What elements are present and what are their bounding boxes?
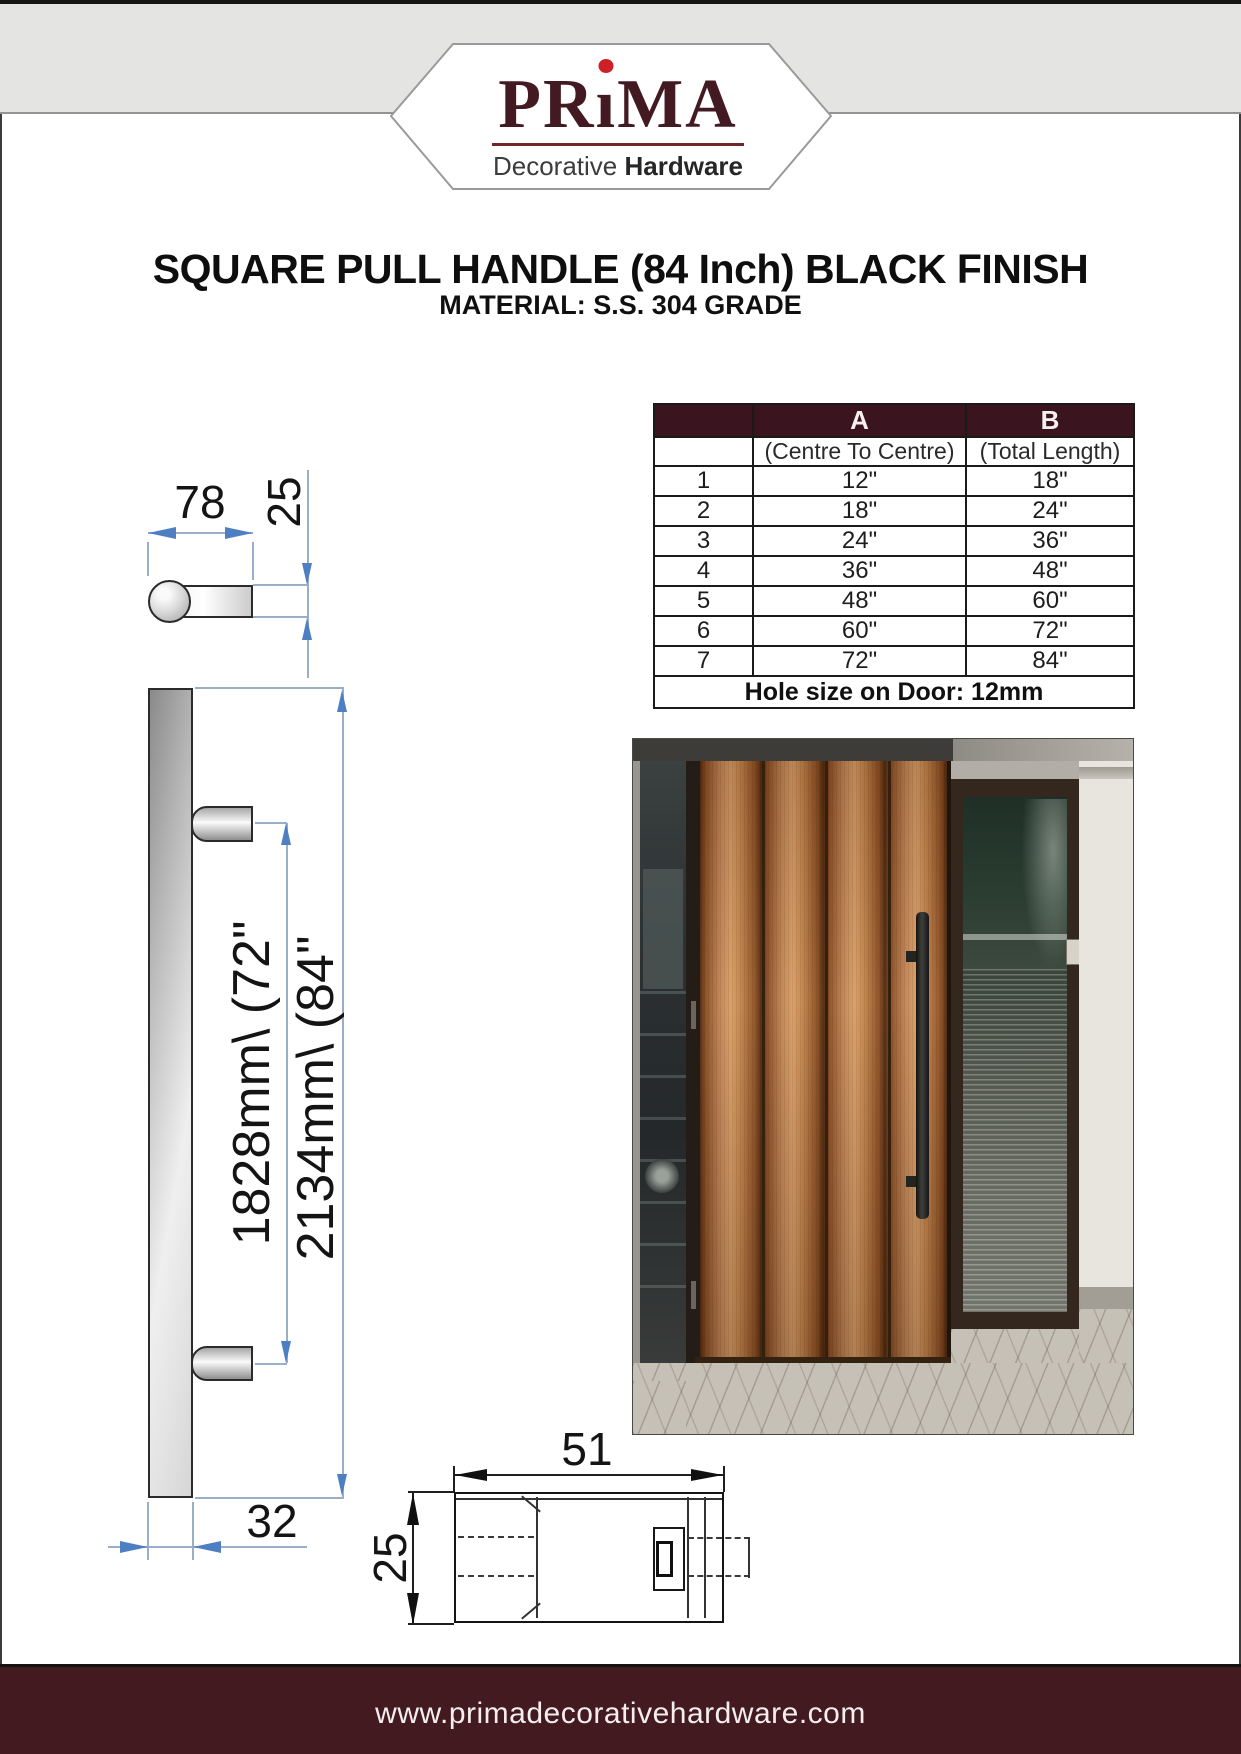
row-b: 60" — [966, 586, 1134, 616]
section-inner-line — [704, 1497, 706, 1618]
table-row: 2 18" 24" — [654, 496, 1134, 526]
dim-leader — [195, 687, 344, 689]
dim-leader — [253, 616, 308, 618]
row-no: 1 — [654, 466, 753, 496]
size-table: A B (Centre To Centre) (Total Length) 1 … — [653, 403, 1135, 709]
soffit — [633, 739, 953, 761]
row-no: 4 — [654, 556, 753, 586]
table-row: 7 72" 84" — [654, 646, 1134, 676]
brand-tagline: Decorative Hardware — [368, 151, 868, 182]
dim-label-height: 25 — [363, 1532, 417, 1583]
row-b: 36" — [966, 526, 1134, 556]
dim-arrow — [148, 527, 176, 539]
dim-arrow — [193, 1541, 221, 1553]
screw-thread-line — [688, 1575, 750, 1577]
subheader-col-b: (Total Length) — [966, 437, 1134, 466]
section-top-inner-line — [456, 1498, 722, 1500]
nut-edge-line — [536, 1497, 538, 1618]
header-col-a: A — [753, 404, 966, 437]
glass-streak — [963, 934, 1067, 940]
internal-thread-line — [458, 1575, 534, 1577]
table-subheader-row: (Centre To Centre) (Total Length) — [654, 437, 1134, 466]
dim-arrow — [337, 690, 347, 712]
dim-ext-line — [723, 1466, 725, 1492]
dim-arrow — [302, 618, 312, 640]
row-no: 2 — [654, 496, 753, 526]
dim-arrow — [337, 1474, 347, 1496]
brand-wordmark: PRıMA — [368, 70, 868, 140]
dim-label-width: 78 — [174, 475, 225, 529]
handle-top-view-post — [148, 580, 191, 623]
door-frame-left — [686, 761, 700, 1379]
table-note-row: Hole size on Door: 12mm — [654, 676, 1134, 708]
dim-leader — [255, 822, 287, 824]
table-row: 3 24" 36" — [654, 526, 1134, 556]
column-skirting — [1079, 1287, 1133, 1309]
handle-side-view-bar — [148, 688, 193, 1498]
internal-thread-line — [458, 1536, 534, 1538]
paver-floor — [633, 1381, 686, 1434]
ceiling — [953, 739, 1133, 761]
dim-label-total-length: 2134mm\ (84" — [286, 936, 346, 1261]
dim-arrow — [281, 823, 291, 845]
spec-sheet-page: PRıMA Decorative Hardware SQUARE PULL HA… — [0, 0, 1241, 1754]
fixing-clip-inner — [656, 1541, 673, 1577]
car-wheel-reflection — [645, 1159, 679, 1193]
row-a: 72" — [753, 646, 966, 676]
row-no: 5 — [654, 586, 753, 616]
page-title: SQUARE PULL HANDLE (84 Inch) BLACK FINIS… — [0, 246, 1241, 293]
hinge — [691, 1281, 696, 1309]
row-a: 12" — [753, 466, 966, 496]
table-header-row: A B — [654, 404, 1134, 437]
dim-label-length: 51 — [561, 1422, 612, 1476]
dim-arrow — [407, 1593, 419, 1625]
header-col-b: B — [966, 404, 1134, 437]
dim-label-centre-to-centre: 1828mm\ (72" — [222, 921, 282, 1246]
footer-website: www.primadecorativehardware.com — [0, 1697, 1241, 1731]
brand-tagline-bold: Hardware — [625, 151, 744, 181]
door-plank-gap — [888, 761, 891, 1361]
row-b: 72" — [966, 616, 1134, 646]
brand-part2: MA — [617, 66, 738, 143]
handle-mount-post-bottom — [191, 1346, 253, 1381]
row-no: 7 — [654, 646, 753, 676]
handle-mount-post-top — [191, 806, 253, 842]
glass-reflection — [643, 869, 683, 989]
row-no: 3 — [654, 526, 753, 556]
door-plank-gap — [825, 761, 828, 1361]
dim-arrow — [302, 563, 312, 585]
section-inner-line — [687, 1497, 689, 1618]
page-subtitle: MATERIAL: S.S. 304 GRADE — [0, 290, 1241, 321]
black-pull-handle — [916, 912, 929, 1219]
table-row: 4 36" 48" — [654, 556, 1134, 586]
left-glass-panel — [640, 761, 686, 1381]
column-cornice — [1079, 767, 1133, 779]
table-row: 6 60" 72" — [654, 616, 1134, 646]
dim-leader — [408, 1491, 454, 1493]
row-b: 18" — [966, 466, 1134, 496]
dim-ext-line — [147, 542, 149, 576]
brand-logo: PRıMA Decorative Hardware — [368, 70, 868, 182]
dim-leader — [408, 1623, 454, 1625]
subheader-col-a: (Centre To Centre) — [753, 437, 966, 466]
row-b: 84" — [966, 646, 1134, 676]
table-row: 5 48" 60" — [654, 586, 1134, 616]
dim-arrow — [120, 1541, 148, 1553]
dim-arrow — [225, 527, 253, 539]
brand-tagline-light: Decorative — [493, 151, 617, 181]
row-a: 36" — [753, 556, 966, 586]
row-b: 24" — [966, 496, 1134, 526]
row-a: 24" — [753, 526, 966, 556]
paver-floor — [633, 1363, 1133, 1434]
brand-underline — [492, 143, 744, 146]
dim-arrow — [455, 1469, 487, 1481]
brand-part1: PR — [498, 66, 595, 143]
fence-reflection — [640, 991, 686, 1311]
tree-reflection — [1021, 799, 1067, 969]
row-a: 60" — [753, 616, 966, 646]
dim-label-projection: 32 — [246, 1494, 297, 1548]
photo-left-sliver — [633, 761, 640, 1434]
row-a: 18" — [753, 496, 966, 526]
dim-arrow — [691, 1469, 723, 1481]
dim-leader — [253, 584, 308, 586]
dim-label-thickness: 25 — [257, 476, 311, 527]
screw-thread-line — [688, 1537, 750, 1539]
table-row: 1 12" 18" — [654, 466, 1134, 496]
brand-letter-i-red-dot-icon: ı — [596, 70, 617, 140]
dim-arrow — [281, 1341, 291, 1363]
subheader-blank-cell — [654, 437, 753, 466]
dim-ext-line — [252, 542, 254, 580]
door-photo — [632, 738, 1134, 1435]
door-plank-gap — [762, 761, 765, 1361]
header-blank-cell — [654, 404, 753, 437]
hole-size-note: Hole size on Door: 12mm — [654, 676, 1134, 708]
row-no: 6 — [654, 616, 753, 646]
dim-leader — [255, 1363, 287, 1365]
window-blinds — [963, 969, 1067, 1312]
screw-end-line — [748, 1538, 750, 1578]
wooden-door — [700, 761, 947, 1361]
dim-arrow — [407, 1493, 419, 1525]
row-b: 48" — [966, 556, 1134, 586]
hinge — [691, 1001, 696, 1029]
row-a: 48" — [753, 586, 966, 616]
